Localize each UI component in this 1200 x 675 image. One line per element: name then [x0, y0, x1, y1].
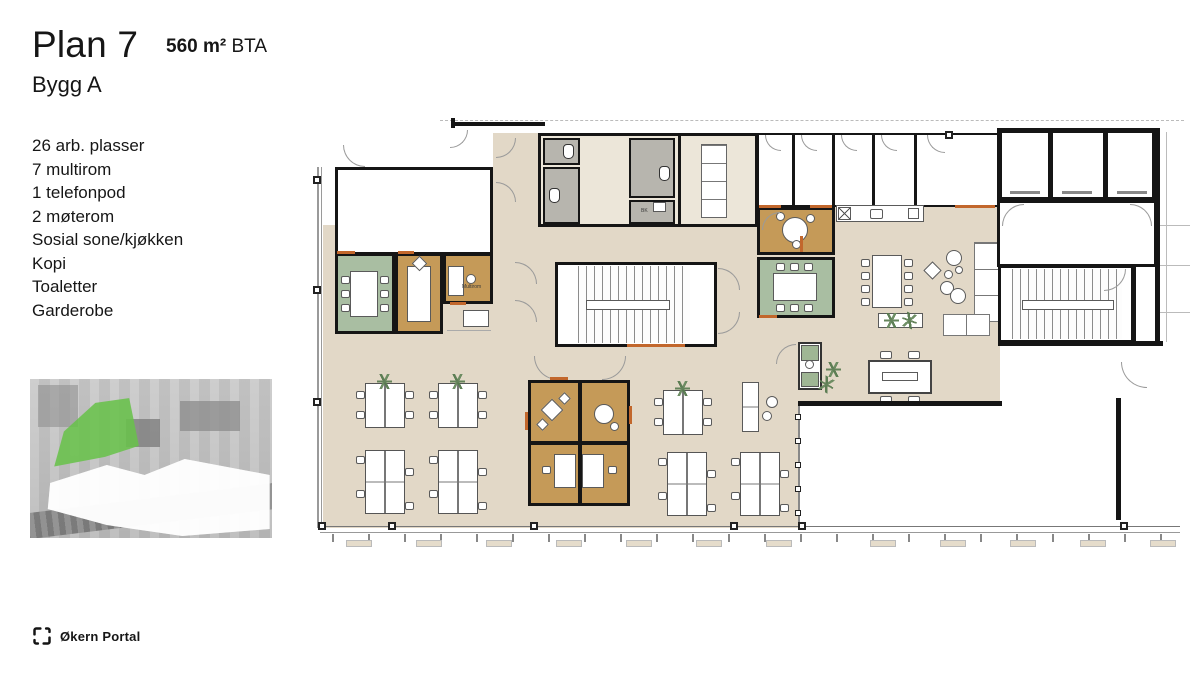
sink-icon [870, 209, 883, 219]
elevator-door [1117, 191, 1147, 194]
wall-right-bottom [998, 341, 1163, 346]
elevator-door [1010, 191, 1040, 194]
facade-bottom [320, 526, 1180, 533]
okern-portal-logo-icon [32, 626, 52, 646]
facade-fin [800, 534, 802, 542]
meeting-table [350, 271, 378, 317]
office-chair [356, 456, 365, 464]
sun-shade [696, 540, 722, 547]
sun-shade [556, 540, 582, 547]
sun-shade [626, 540, 652, 547]
facade-column [730, 522, 738, 530]
facade-fin [476, 534, 478, 542]
room-label-multirom: Multirom [462, 284, 481, 290]
glass-mullion [795, 486, 801, 492]
dining-table [872, 255, 902, 308]
office-chair [780, 470, 789, 478]
area-unit: BTA [226, 36, 267, 57]
office-chair [780, 504, 789, 512]
door-arc [1121, 362, 1147, 388]
facade-column [313, 398, 321, 406]
elevator-door [1062, 191, 1092, 194]
pouf [766, 396, 778, 408]
desk-cluster [438, 383, 478, 428]
room-garderobe [335, 167, 493, 255]
office-chair [731, 458, 740, 466]
office-chair [703, 418, 712, 426]
multirom-block [528, 380, 630, 506]
shaft-shelves [701, 144, 727, 218]
logo-text: Økern Portal [60, 629, 140, 644]
sun-shade [870, 540, 896, 547]
sun-shade [486, 540, 512, 547]
kopi-divider [447, 330, 491, 331]
facade-fin [332, 534, 334, 542]
office-chair [356, 490, 365, 498]
wall-terrace [1116, 398, 1121, 520]
facade-fin [1052, 534, 1054, 542]
office-chair [429, 490, 438, 498]
office-chair [405, 468, 414, 476]
floor-plan: Multirom BK [310, 116, 1194, 552]
wall-tenancy [798, 401, 1002, 406]
office-chair [731, 492, 740, 500]
glass-mullion [795, 510, 801, 516]
feature-item: 7 multirom [32, 158, 183, 182]
plant-icon [675, 381, 690, 396]
office-chair [478, 411, 487, 419]
sink-icon [805, 360, 814, 369]
facade-fin [512, 534, 514, 542]
facade-column [318, 522, 326, 530]
plant-icon [450, 374, 465, 389]
door-arc [343, 145, 365, 167]
facade-fin [980, 534, 982, 542]
desk-cluster [663, 390, 703, 435]
glass-mullion [795, 414, 801, 420]
chair-round [466, 274, 476, 284]
sofa-modules [943, 314, 990, 336]
area-value: 560 m² [166, 36, 226, 57]
feature-item: 26 arb. plasser [32, 134, 183, 158]
sun-shade [940, 540, 966, 547]
feature-item: Kopi [32, 252, 183, 276]
facade-fin [584, 534, 586, 542]
office-chair [429, 391, 438, 399]
sun-shade [416, 540, 442, 547]
stair-landing [1022, 300, 1114, 310]
office-chair [658, 458, 667, 466]
feature-item: 2 møterom [32, 205, 183, 229]
plant-icon [377, 374, 392, 389]
office-chair [405, 502, 414, 510]
locker-cabinet [742, 382, 759, 432]
site-boundary-dashed [440, 120, 1184, 121]
facade-fin [836, 534, 838, 542]
feature-item: 1 telefonpod [32, 181, 183, 205]
appliance-icon [908, 208, 919, 219]
feature-item: Toaletter [32, 275, 183, 299]
desk-cluster [740, 452, 780, 516]
city-block [38, 385, 78, 427]
service-core: BK [538, 133, 758, 227]
facade-column [313, 286, 321, 294]
facade-fin [908, 534, 910, 542]
facade-column [313, 176, 321, 184]
room-wc-1 [543, 138, 580, 165]
aerial-photo [30, 379, 272, 538]
sun-shade [346, 540, 372, 547]
facade-fin [404, 534, 406, 542]
desk [448, 266, 464, 296]
pouf [955, 266, 963, 274]
desk-cluster [365, 383, 405, 428]
glass-mullion [795, 462, 801, 468]
column [945, 131, 953, 139]
lounge-chair [946, 250, 962, 266]
sun-shade [1150, 540, 1176, 547]
desk-cluster [667, 452, 707, 516]
office-chair [658, 492, 667, 500]
pouf [950, 288, 966, 304]
area-label: 560 m² BTA [166, 36, 267, 58]
desk [554, 454, 576, 488]
toilet-icon [549, 188, 560, 203]
room-bk [629, 200, 675, 224]
office-chair [429, 411, 438, 419]
sun-shade [766, 540, 792, 547]
pouf [762, 411, 772, 421]
desk [582, 454, 604, 488]
facade-fin [728, 534, 730, 542]
desk-cluster [365, 450, 405, 514]
door-arc [450, 130, 468, 148]
facade-column [388, 522, 396, 530]
city-block [180, 401, 240, 431]
facade-fin [620, 534, 622, 542]
sun-shade [1080, 540, 1106, 547]
desk-cluster [438, 450, 478, 514]
feature-item: Sosial sone/kjøkken [32, 228, 183, 252]
sun-shade [1010, 540, 1036, 547]
facade-column [1120, 522, 1128, 530]
feature-item: Garderobe [32, 299, 183, 323]
office-chair [654, 398, 663, 406]
office-chair [478, 502, 487, 510]
wall-stub [451, 118, 455, 128]
facade-fin [548, 534, 550, 542]
work-table [407, 266, 431, 322]
office-chair [356, 411, 365, 419]
toilet-icon [563, 144, 574, 159]
building-label: Bygg A [32, 72, 102, 98]
office-chair [405, 411, 414, 419]
office-chair [703, 398, 712, 406]
facade-column [798, 522, 806, 530]
office-chair [707, 504, 716, 512]
office-chair [405, 391, 414, 399]
logo: Økern Portal [32, 626, 140, 646]
island-trough [882, 372, 918, 381]
glass-mullion [795, 438, 801, 444]
facade-fin [692, 534, 694, 542]
wall-top-left [453, 122, 545, 126]
facade-fin [1124, 534, 1126, 542]
pouf [944, 270, 953, 279]
stove-icon [838, 207, 851, 220]
facade-left [317, 167, 319, 528]
office-chair [654, 418, 663, 426]
feature-list: 26 arb. plasser 7 multirom 1 telefonpod … [32, 134, 183, 322]
office-chair [478, 468, 487, 476]
elevator-block [997, 128, 1157, 202]
office-chair [429, 456, 438, 464]
rooms-row-top [757, 133, 1002, 207]
facade-fin [656, 534, 658, 542]
printer-kopi [463, 310, 489, 327]
toilet-icon [659, 166, 670, 181]
page-title: Plan 7 [32, 24, 138, 66]
office-chair [356, 391, 365, 399]
room-label-bk: BK [641, 208, 648, 214]
sink-icon [653, 202, 666, 212]
office-chair [478, 391, 487, 399]
shaft-wall [678, 136, 681, 224]
meeting-table [773, 273, 817, 301]
round-table [594, 404, 614, 424]
facade-column [530, 522, 538, 530]
stair-landing [586, 300, 670, 310]
office-chair [707, 470, 716, 478]
facade-left-inner [321, 167, 322, 528]
